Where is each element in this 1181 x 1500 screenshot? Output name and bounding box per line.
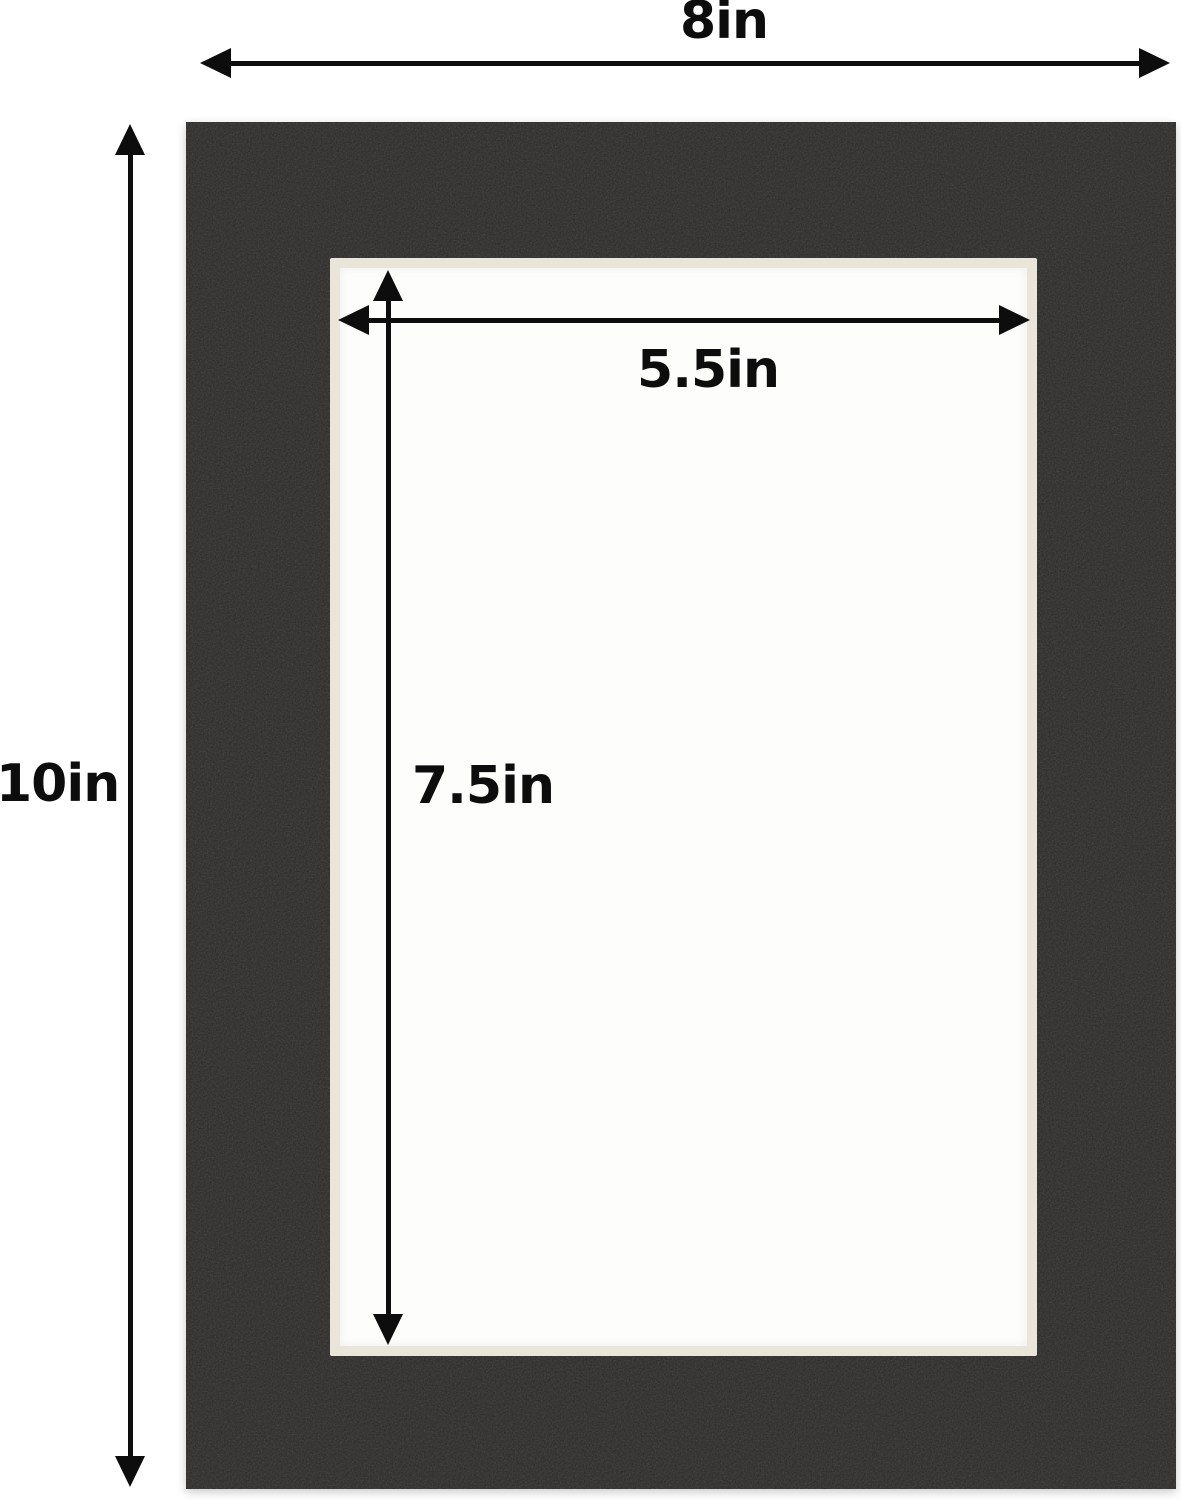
outer-width-arrow xyxy=(200,47,1170,79)
arrowhead-down-icon xyxy=(373,1314,403,1345)
outer-width-label: 8in xyxy=(680,0,768,49)
arrow-shaft xyxy=(365,318,1003,323)
opening-height-label: 7.5in xyxy=(412,758,554,814)
mat-dimension-diagram: 8in 10in 5.5in 7.5in xyxy=(0,0,1181,1500)
arrow-shaft xyxy=(386,297,391,1318)
opening-width-label: 5.5in xyxy=(637,342,779,398)
outer-height-label: 10in xyxy=(0,756,119,812)
arrowhead-down-icon xyxy=(115,1456,145,1487)
arrow-shaft xyxy=(227,61,1143,66)
arrowhead-right-icon xyxy=(999,305,1030,335)
arrow-shaft xyxy=(128,151,133,1460)
opening-width-arrow xyxy=(338,304,1030,336)
arrowhead-right-icon xyxy=(1139,48,1170,78)
opening-height-arrow xyxy=(372,270,404,1345)
